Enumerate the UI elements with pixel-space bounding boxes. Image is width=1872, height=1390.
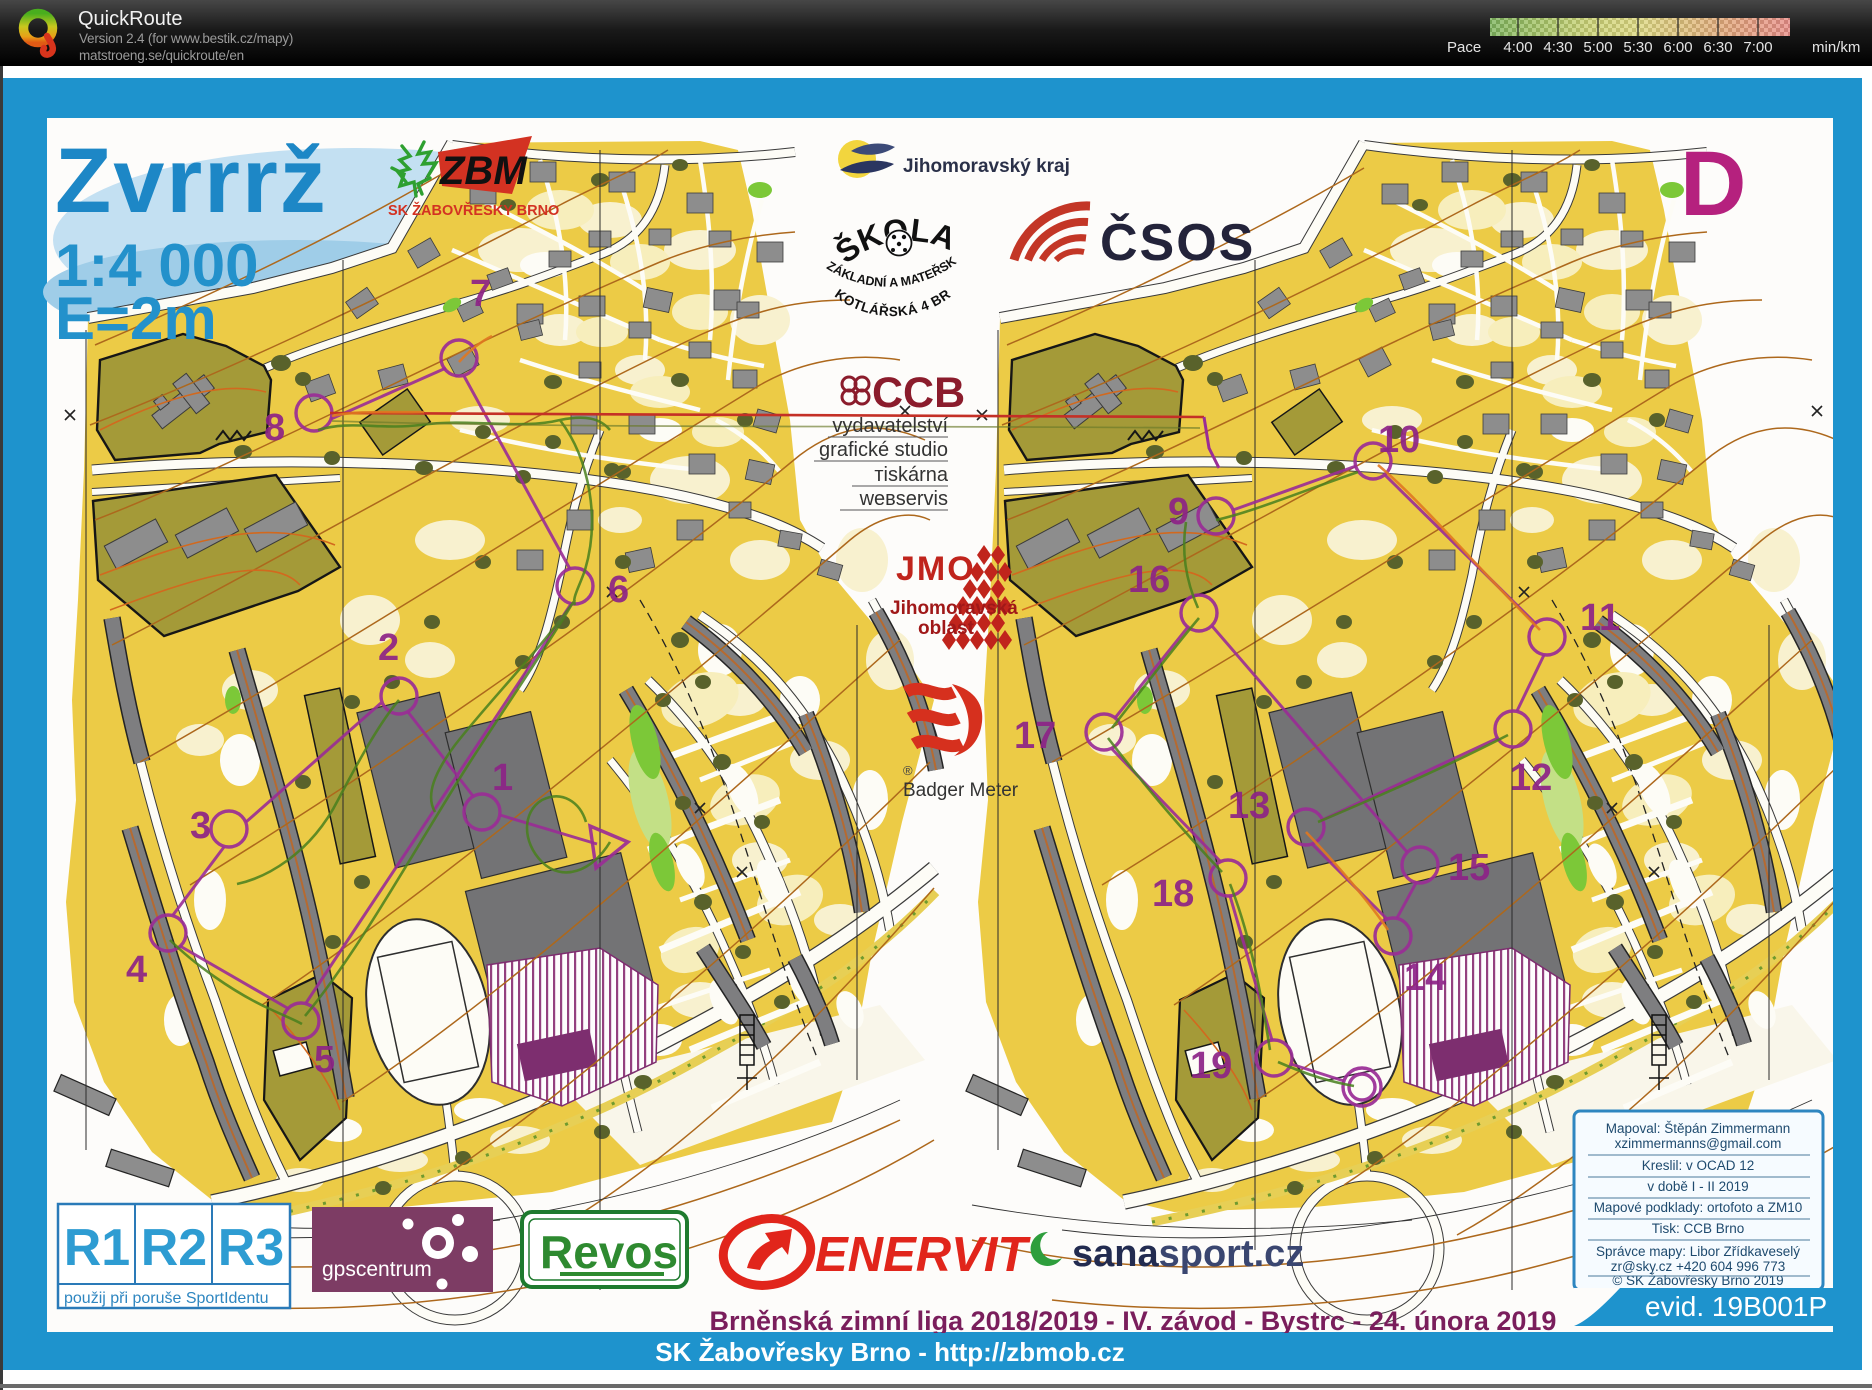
svg-text:8: 8 xyxy=(264,407,285,449)
svg-text:14: 14 xyxy=(1404,957,1446,999)
svg-text:18: 18 xyxy=(1152,873,1194,915)
svg-text:R3: R3 xyxy=(218,1219,284,1277)
svg-text:Badger Meter: Badger Meter xyxy=(903,780,1019,801)
svg-text:Tisk: CCB Brno: Tisk: CCB Brno xyxy=(1652,1221,1745,1236)
svg-text:1: 1 xyxy=(492,757,513,799)
svg-text:2: 2 xyxy=(378,627,399,669)
svg-text:xzimmermanns@gmail.com: xzimmermanns@gmail.com xyxy=(1615,1136,1782,1151)
svg-text:10: 10 xyxy=(1378,419,1420,461)
svg-text:5:00: 5:00 xyxy=(1583,39,1612,56)
svg-text:6:30: 6:30 xyxy=(1703,39,1732,56)
svg-text:E=2m: E=2m xyxy=(55,285,217,352)
svg-text:matstroeng.se/quickroute/en: matstroeng.se/quickroute/en xyxy=(79,48,244,63)
svg-text:CCB: CCB xyxy=(872,369,965,417)
svg-text:QuickRoute: QuickRoute xyxy=(78,8,183,30)
svg-text:13: 13 xyxy=(1228,785,1270,827)
svg-text:тiskárna: тiskárna xyxy=(874,464,949,486)
svg-text:evid. 19B001P: evid. 19B001P xyxy=(1645,1291,1827,1322)
svg-text:© SK Žabovřesky Brno 2019: © SK Žabovřesky Brno 2019 xyxy=(1612,1273,1783,1288)
svg-text:R1: R1 xyxy=(64,1219,130,1277)
svg-text:6:00: 6:00 xyxy=(1663,39,1692,56)
svg-text:min/km: min/km xyxy=(1812,39,1860,56)
svg-text:Brněnská zimní liga 2018/2019: Brněnská zimní liga 2018/2019 - IV. závo… xyxy=(710,1306,1557,1336)
svg-text:Mapové podklady: ortofoto a ZM: Mapové podklady: ortofoto a ZM10 xyxy=(1594,1200,1803,1215)
svg-text:použij při poruše SportIdentu: použij při poruše SportIdentu xyxy=(64,1290,269,1307)
svg-text:SK Žabovřesky Brno - http://zb: SK Žabovřesky Brno - http://zbmob.cz xyxy=(655,1337,1125,1367)
svg-text:17: 17 xyxy=(1014,715,1056,757)
svg-text:grafické studio: grafické studio xyxy=(819,439,948,461)
svg-text:Zvrrrž: Zvrrrž xyxy=(55,130,328,232)
svg-text:D: D xyxy=(1680,133,1746,235)
svg-text:ČSOS: ČSOS xyxy=(1100,213,1255,272)
svg-text:Pace: Pace xyxy=(1447,39,1481,56)
svg-text:4:30: 4:30 xyxy=(1543,39,1572,56)
svg-text:sanasport.cz: sanasport.cz xyxy=(1072,1233,1304,1275)
svg-text:weвservis: weвservis xyxy=(859,488,948,510)
svg-text:ENERVIT: ENERVIT xyxy=(815,1228,1031,1282)
svg-text:11: 11 xyxy=(1580,597,1620,639)
svg-text:5:30: 5:30 xyxy=(1623,39,1652,56)
svg-text:Mapoval: Štěpán Zimmermann: Mapoval: Štěpán Zimmermann xyxy=(1606,1121,1791,1136)
svg-text:7:00: 7:00 xyxy=(1743,39,1772,56)
svg-text:®: ® xyxy=(903,763,913,778)
svg-text:Kreslil: v OCAD 12: Kreslil: v OCAD 12 xyxy=(1642,1158,1755,1173)
svg-text:4: 4 xyxy=(126,949,147,991)
svg-text:5: 5 xyxy=(314,1039,335,1081)
svg-text:Revos: Revos xyxy=(540,1226,678,1278)
svg-text:oblast: oblast xyxy=(918,618,975,639)
svg-text:6: 6 xyxy=(608,569,629,611)
svg-text:15: 15 xyxy=(1448,847,1490,889)
svg-text:Version 2.4 (for www.bestik.c: Version 2.4 (for www.bestik.cz/mapy) xyxy=(79,31,293,46)
svg-text:ZBM: ZBM xyxy=(439,149,528,193)
svg-text:Jihomoravská: Jihomoravská xyxy=(890,598,1018,619)
svg-text:SK ŽABOVŘESKY BRNO: SK ŽABOVŘESKY BRNO xyxy=(388,201,559,219)
svg-text:Správce mapy: Libor Zřídkavese: Správce mapy: Libor Zřídkaveselý xyxy=(1596,1244,1800,1259)
svg-text:zr@sky.cz +420 604 996 773: zr@sky.cz +420 604 996 773 xyxy=(1611,1259,1785,1274)
svg-text:3: 3 xyxy=(190,805,211,847)
svg-text:16: 16 xyxy=(1128,559,1170,601)
svg-text:vydavatelství: vydavatelství xyxy=(832,415,948,437)
svg-text:12: 12 xyxy=(1510,757,1552,799)
svg-text:v době I - II 2019: v době I - II 2019 xyxy=(1647,1179,1748,1194)
svg-text:19: 19 xyxy=(1190,1045,1232,1087)
svg-text:gpscentrum: gpscentrum xyxy=(322,1258,432,1281)
svg-text:7: 7 xyxy=(470,273,491,315)
svg-text:JMO: JMO xyxy=(896,550,976,588)
svg-text:4:00: 4:00 xyxy=(1503,39,1532,56)
svg-text:Jihomoravský kraj: Jihomoravský kraj xyxy=(903,156,1070,177)
svg-text:R2: R2 xyxy=(141,1219,207,1277)
